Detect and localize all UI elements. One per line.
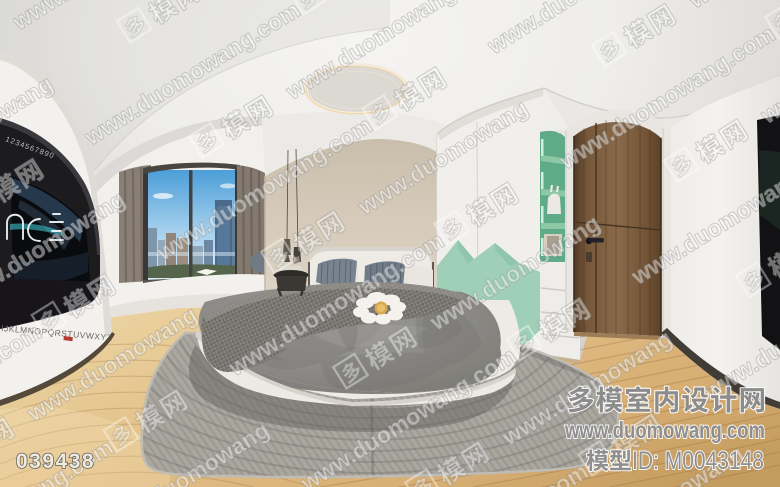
svg-text:ID: M0043148: ID: M0043148: [632, 447, 764, 475]
svg-text:039438: 039438: [16, 450, 95, 473]
svg-text:www.duomowang.com: www.duomowang.com: [564, 417, 765, 443]
